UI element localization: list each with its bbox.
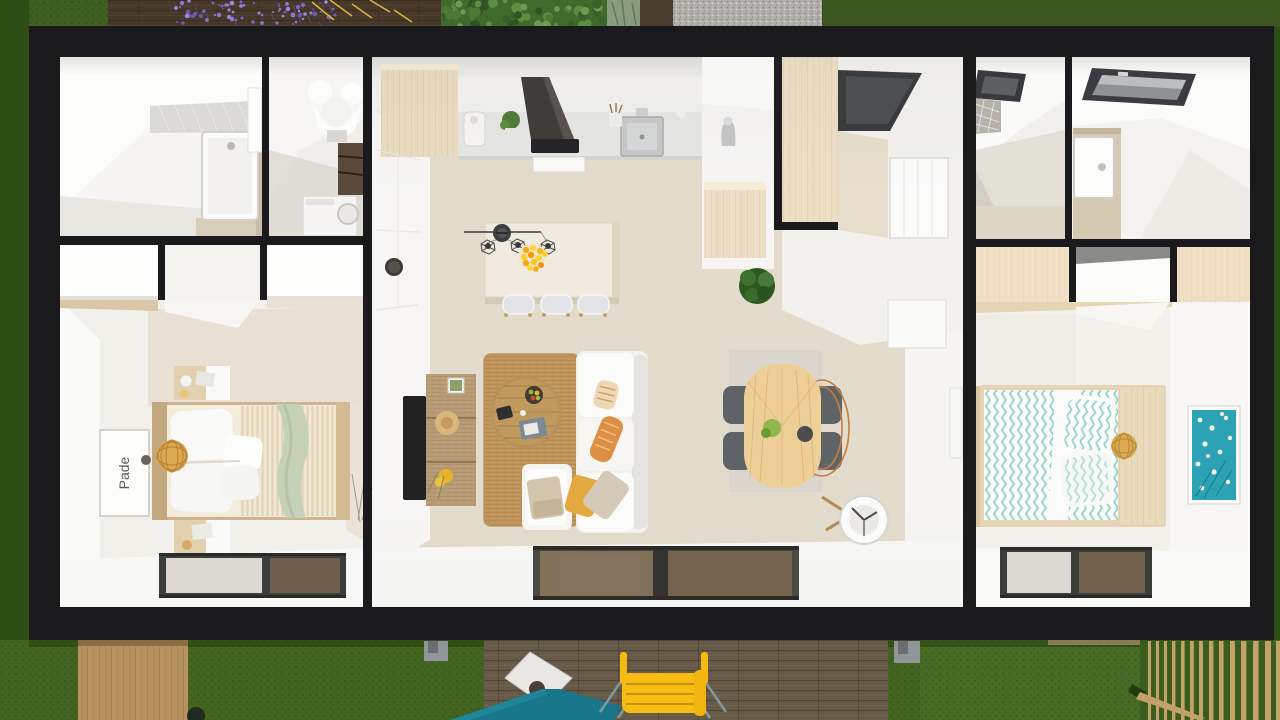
svg-text:Pade: Pade [116, 456, 132, 489]
